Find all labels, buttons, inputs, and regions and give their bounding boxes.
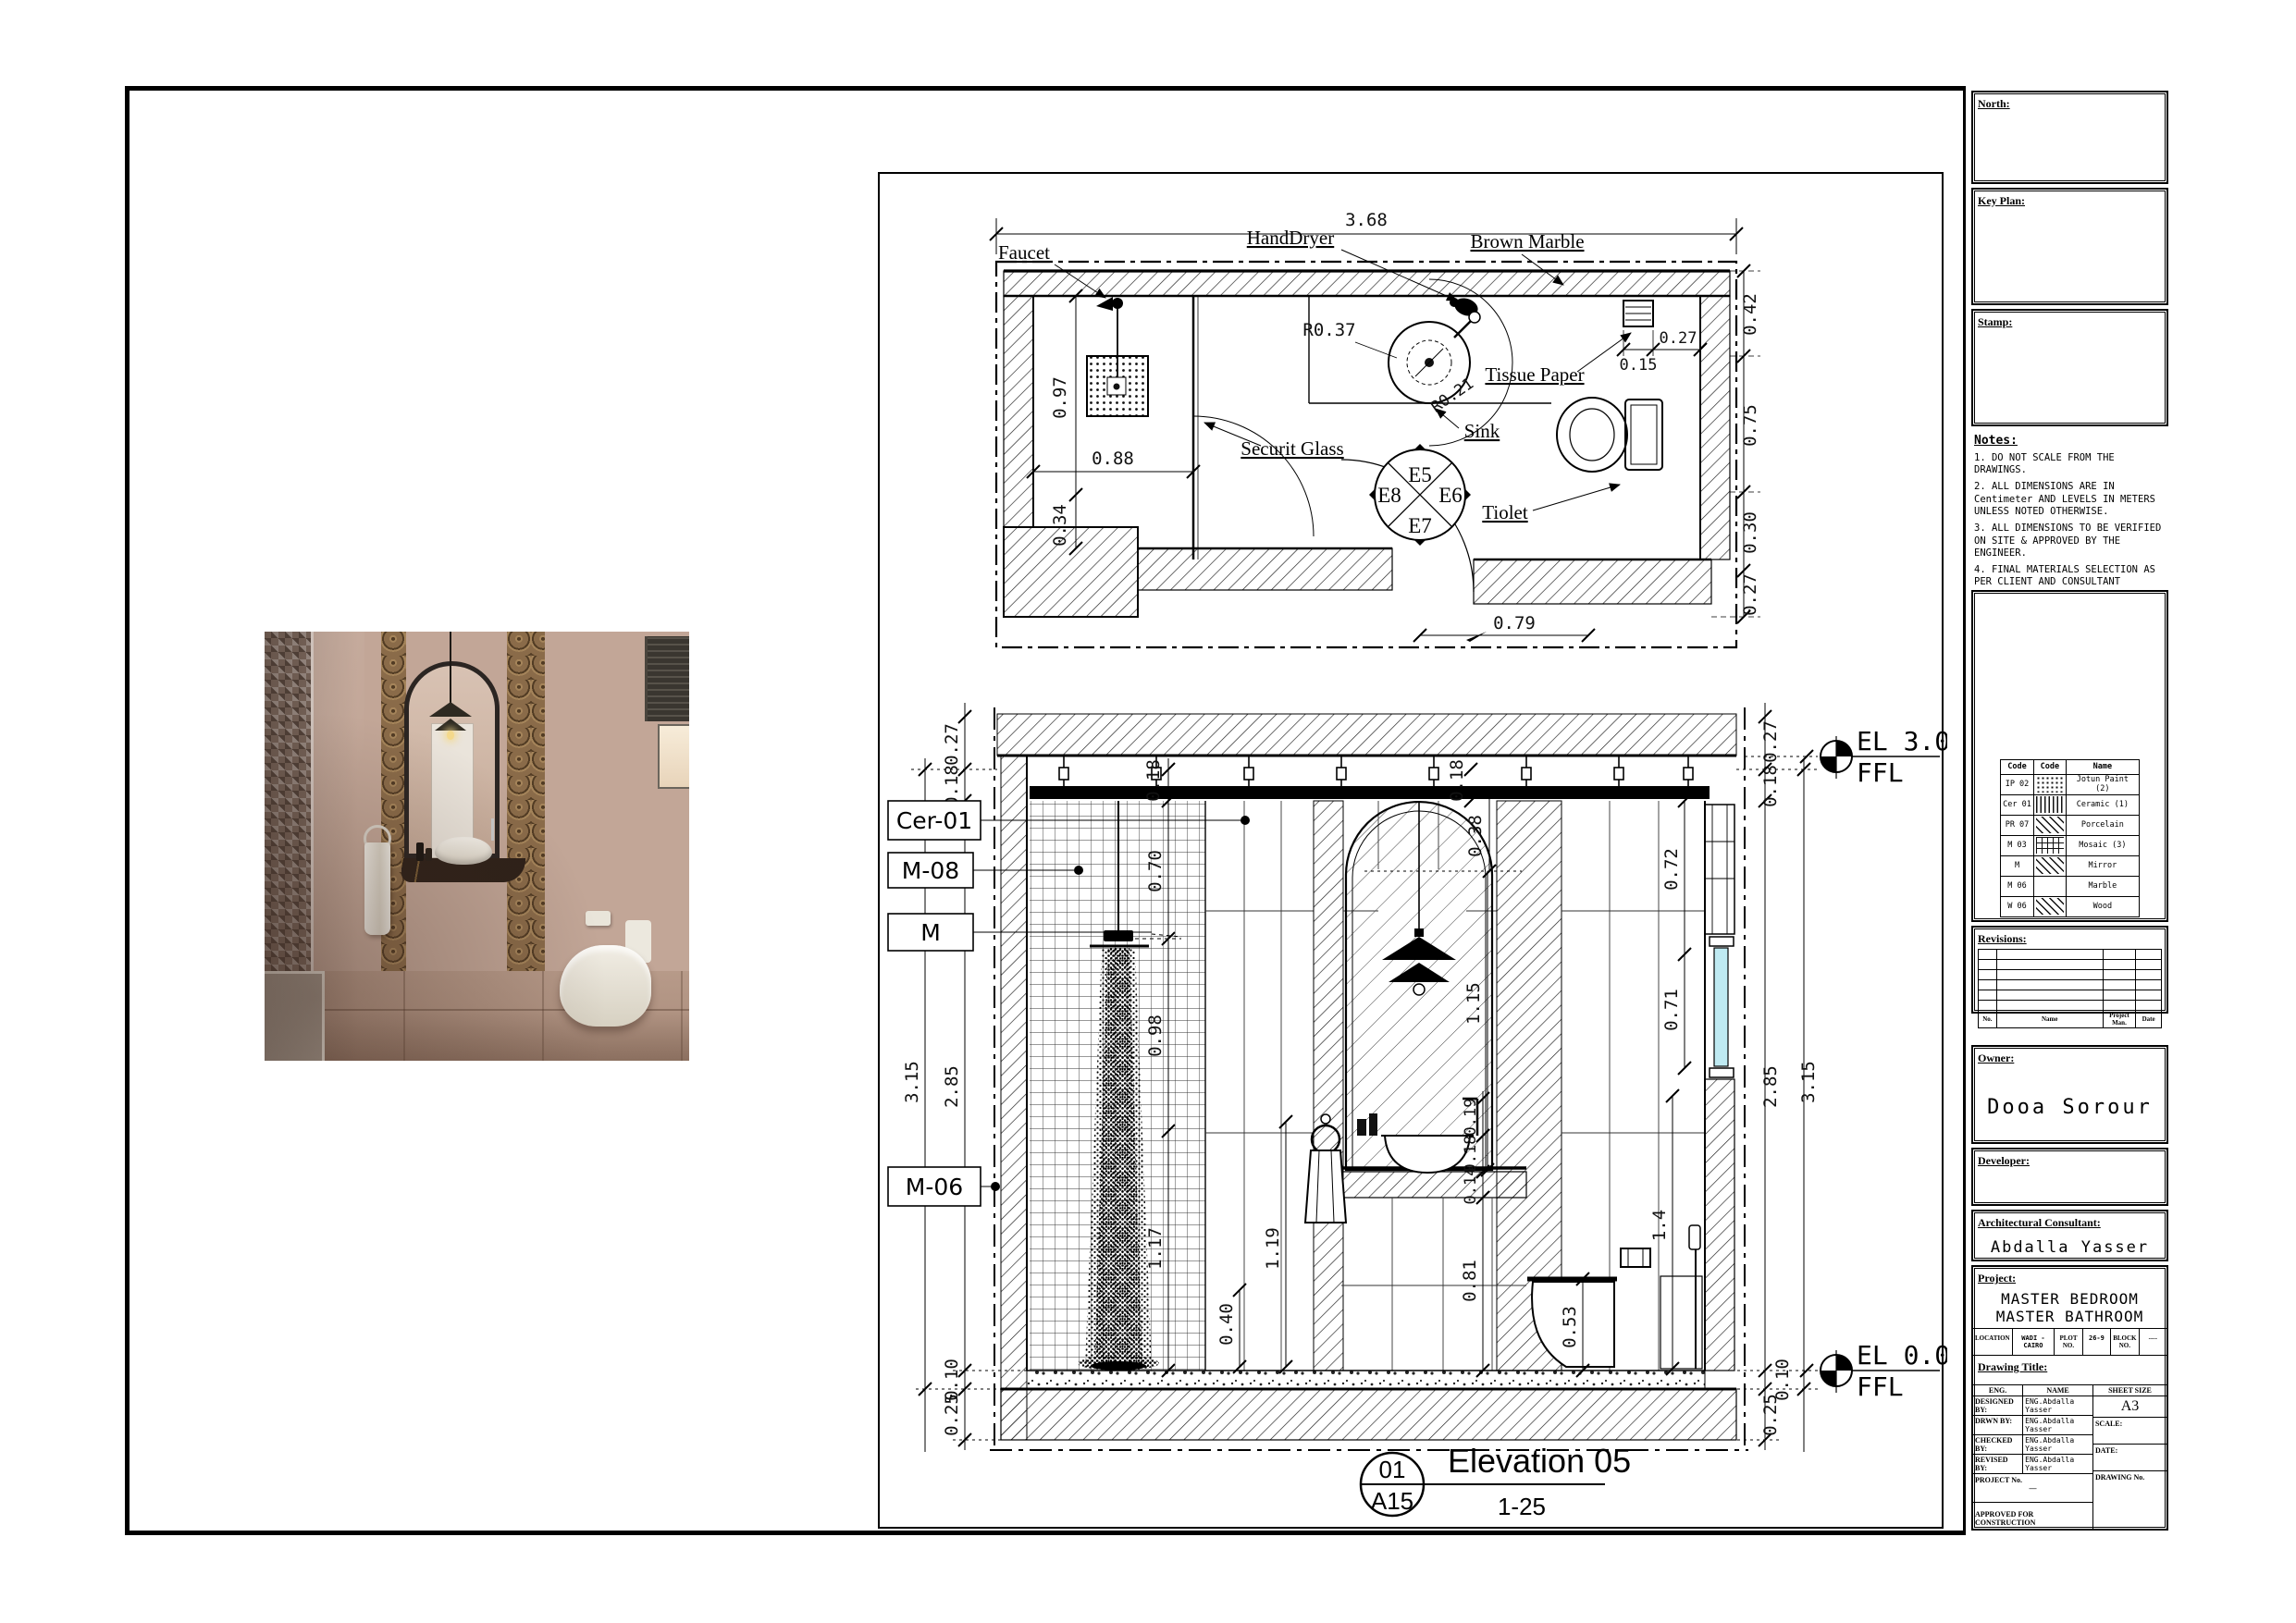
elev-dim-l027: 0.27 [942,723,962,766]
legend-row: MMirror [2001,855,2140,876]
eng-col-name: NAME [2023,1385,2092,1396]
elev-big-tiles-left [1205,801,1314,1371]
keyplan-label: Key Plan: [1978,194,2025,207]
drawing-no-label: DRAWING No. [2093,1471,2166,1483]
revisions-label: Revisions: [1978,932,2027,945]
consultant-name: Abdalla Yasser [1978,1238,2162,1257]
swatch-mirror [2036,857,2064,874]
plan-toilet [1557,398,1662,472]
plan-sink-radius2: R0.21 [1427,375,1476,417]
stamp-label: Stamp: [1978,315,2012,328]
elevation-drawing: 0.27 0.18 2.85 0.10 0.25 3.15 0.27 0.18 … [888,703,1947,1520]
marker-e5: E5 [1408,463,1432,486]
label-hand-dryer: HandDryer [1247,227,1334,249]
note-3: 3. ALL DIMENSIONS TO BE VERIFIED ON SITE… [1974,523,2166,560]
drawing-sheet: 3.68 [874,166,1947,1535]
project-line1: MASTER BEDROOM [1978,1290,2162,1308]
legend-header-code2: Code [2033,759,2066,774]
owner-name: Dooa Sorour [1978,1096,2162,1119]
floor-plan: 3.68 [990,210,1760,647]
view-scale: 1-25 [1498,1493,1546,1520]
label-tissue-paper: Tissue Paper [1485,363,1584,386]
tag-m08: M-08 [902,857,959,884]
elev-hatched-strip-left [1314,801,1343,1371]
view-title: 01 A15 Elevation 05 1-25 [1361,1442,1631,1520]
tag-m06: M-06 [906,1174,963,1200]
faucet-symbol [1096,297,1113,311]
drawn-by-label: DRWN BY: [1973,1416,2023,1434]
swatch-wood [2036,898,2064,915]
plan-tissue-holder [1617,301,1707,356]
swatch-porcelain [2036,817,2064,833]
owner-label: Owner: [1978,1051,2014,1064]
elev-dropped-ceiling [1030,786,1710,799]
rev-col-name: Name [1996,1010,2103,1027]
elev-ceiling-slab [997,714,1736,756]
legend-header-name: Name [2066,759,2139,774]
legend-box: Code Code Name IP 02Jotun Paint (2) Cer … [1971,590,2168,922]
elev-dim-r285: 2.85 [1760,1065,1781,1108]
keyplan-box: Key Plan: [1971,188,2168,305]
notes-label: Notes: [1974,434,2018,448]
plan-dim-097: 0.97 [1050,376,1070,419]
consultant-label: Architectural Consultant: [1978,1216,2101,1229]
revised-by-label: REVISED BY: [1973,1455,2023,1473]
elev-dim-i117: 1.17 [1145,1227,1166,1270]
eng-table: ENG.NAME DESIGNED BY:ENG.Abdalla Yasser … [1973,1385,2166,1529]
plan-dim-088: 0.88 [1092,449,1134,469]
designed-by-label: DESIGNED BY: [1973,1396,2023,1415]
plan-dim-042: 0.42 [1740,293,1760,336]
plan-dim-total-text: 3.68 [1345,210,1388,230]
elev-dim-i040: 0.40 [1216,1303,1237,1346]
legend-row: W 06Wood [2001,896,2140,916]
project-box: Project: MASTER BEDROOM MASTER BATHROOM … [1971,1265,2168,1531]
rev-col-date: Date [2136,1010,2162,1027]
project-no-value: — [1975,1484,2091,1493]
approved-label: APPROVED FOR CONSTRUCTION [1973,1503,2092,1529]
photo-light-shadow-overlay [265,632,689,1061]
location-value: WADI - CAIRO [2013,1329,2055,1355]
plan-dim-034: 0.34 [1050,504,1070,547]
north-label: North: [1978,97,2010,110]
elev-dim-r315: 3.15 [1798,1061,1819,1103]
elev-backlit-glass [1714,948,1728,1066]
marker-e8: E8 [1377,484,1401,507]
label-securit-glass: Securit Glass [1241,437,1343,460]
stamp-box: Stamp: [1971,309,2168,426]
note-2: 2. ALL DIMENSIONS ARE IN Centimeter AND … [1974,481,2166,519]
drawing-title-label: Drawing Title: [1978,1360,2047,1373]
elev-dim-i140: 1.4 [1649,1210,1670,1241]
date-label: DATE: [2093,1445,2166,1471]
elevation-marker: E5 E8 E6 E7 [1369,444,1471,546]
elev-dim-l285: 2.85 [942,1065,962,1108]
level-bottom-text: EL 0.00 [1857,1340,1947,1371]
eng-col-eng: ENG. [1973,1385,2023,1396]
rev-col-no: No. [1979,1010,1997,1027]
elev-dim-i018b: 0.18 [1447,759,1467,802]
drawn-by-value: ENG.Abdalla Yasser [2023,1416,2092,1434]
revisions-box: Revisions: No. Name Project Man. Date [1971,926,2168,1014]
swatch-marble [2036,878,2064,894]
revisions-table: No. Name Project Man. Date [1978,949,2162,1028]
project-meta: LOCATION WADI - CAIRO PLOT NO. 26-9 BLOC… [1973,1328,2166,1356]
elev-right-pilaster [1705,801,1734,1371]
legend-row: M 06Marble [2001,876,2140,896]
plot-label: PLOT NO. [2055,1329,2082,1355]
checked-by-value: ENG.Abdalla Yasser [2023,1435,2092,1454]
elev-dim-l315: 3.15 [902,1061,922,1103]
north-box: North: [1971,91,2168,184]
plan-shower [1087,296,1314,559]
block-label: BLOCK NO. [2111,1329,2139,1355]
swatch-jotun-paint [2036,776,2064,793]
project-no-label: PROJECT No. [1975,1476,2022,1484]
view-title-text: Elevation 05 [1448,1442,1631,1480]
elev-dim-i070: 0.70 [1145,850,1166,892]
plan-dim-tp-wall: 0.27 [1660,329,1697,348]
elev-floor-slab [1001,1389,1736,1440]
level-top-ref: FFL [1857,757,1904,788]
elev-dim-i115: 1.15 [1463,982,1484,1025]
view-number: 01 [1379,1456,1406,1483]
elev-dim-r018: 0.18 [1760,765,1781,807]
notes-section: Notes: 1. DO NOT SCALE FROM THE DRAWINGS… [1971,430,2168,590]
elev-left-wall [1001,756,1027,1440]
block-value: ---- [2140,1329,2166,1355]
developer-label: Developer: [1978,1154,2030,1167]
rev-col-pm: Project Man. [2103,1010,2136,1027]
plan-dim-079: 0.79 [1493,613,1536,633]
elev-dim-r025: 0.25 [1760,1394,1781,1436]
elev-dim-i018a: 0.18 [1143,759,1164,802]
designed-by-value: ENG.Abdalla Yasser [2023,1396,2092,1415]
swatch-ceramic [2036,796,2064,813]
plan-dim-030: 0.30 [1740,511,1760,554]
marker-e7: E7 [1408,514,1432,537]
consultant-box: Architectural Consultant: Abdalla Yasser [1971,1210,2168,1261]
plan-sink [1309,279,1551,446]
elev-dim-i119: 1.19 [1263,1227,1283,1270]
material-legend: Code Code Name IP 02Jotun Paint (2) Cer … [2000,759,2140,917]
plan-sink-radius: R0.37 [1302,320,1355,340]
sheet-size-value: A3 [2093,1396,2166,1418]
elev-dim-r071: 0.71 [1661,989,1682,1031]
elev-dim-i014: 0.14 [1462,1167,1480,1205]
legend-header-code1: Code [2001,759,2034,774]
tag-m: M [920,919,941,946]
note-1: 1. DO NOT SCALE FROM THE DRAWINGS. [1974,452,2166,477]
project-label: Project: [1978,1272,2016,1285]
legend-row: M 03Mosaic (3) [2001,835,2140,855]
label-toilet: Tiolet [1482,501,1528,523]
marker-e6: E6 [1438,484,1463,507]
title-block: North: Key Plan: Stamp: Notes: 1. DO NOT… [1963,86,2174,1535]
scale-label: SCALE: [2093,1418,2166,1445]
checked-by-label: CHECKED BY: [1973,1435,2023,1454]
plan-dim-027: 0.27 [1740,573,1760,616]
view-sheet: A15 [1371,1487,1413,1515]
label-brown-marble: Brown Marble [1470,230,1584,252]
owner-box: Owner: Dooa Sorour [1971,1045,2168,1144]
legend-row: IP 02Jotun Paint (2) [2001,774,2140,794]
plan-dim-tp-width: 0.15 [1620,356,1658,375]
label-faucet: Faucet [998,241,1050,264]
plan-dim-075: 0.75 [1740,404,1760,447]
reference-photo [265,632,689,1061]
elev-dim-i053: 0.53 [1560,1306,1580,1348]
elev-level-bottom: EL 0.00 FFL [1705,1340,1947,1402]
elev-dim-i019: 0.19 [1462,1099,1480,1137]
elev-terrazzo-floor [1027,1371,1705,1389]
level-top-text: EL 3.05 [1857,726,1947,756]
sheet-size-label: SHEET SIZE [2093,1385,2166,1396]
label-sink: Sink [1464,420,1500,442]
elev-dim-r072: 0.72 [1661,848,1682,891]
elev-dim-l025: 0.25 [942,1394,962,1436]
location-label: LOCATION [1973,1329,2013,1355]
legend-row: PR 07Porcelain [2001,815,2140,835]
developer-box: Developer: [1971,1148,2168,1206]
elev-dim-i098: 0.98 [1145,1014,1166,1057]
legend-row: Cer 01Ceramic (1) [2001,794,2140,815]
revised-by-value: ENG.Abdalla Yasser [2023,1455,2092,1473]
elev-dim-i081: 0.81 [1460,1260,1480,1302]
level-bottom-ref: FFL [1857,1371,1904,1402]
plot-value: 26-9 [2083,1329,2111,1355]
elev-dim-i038: 0.38 [1465,815,1486,857]
tag-cer01: Cer-01 [896,807,972,834]
swatch-mosaic [2036,837,2064,854]
project-line2: MASTER BATHROOM [1978,1308,2162,1325]
